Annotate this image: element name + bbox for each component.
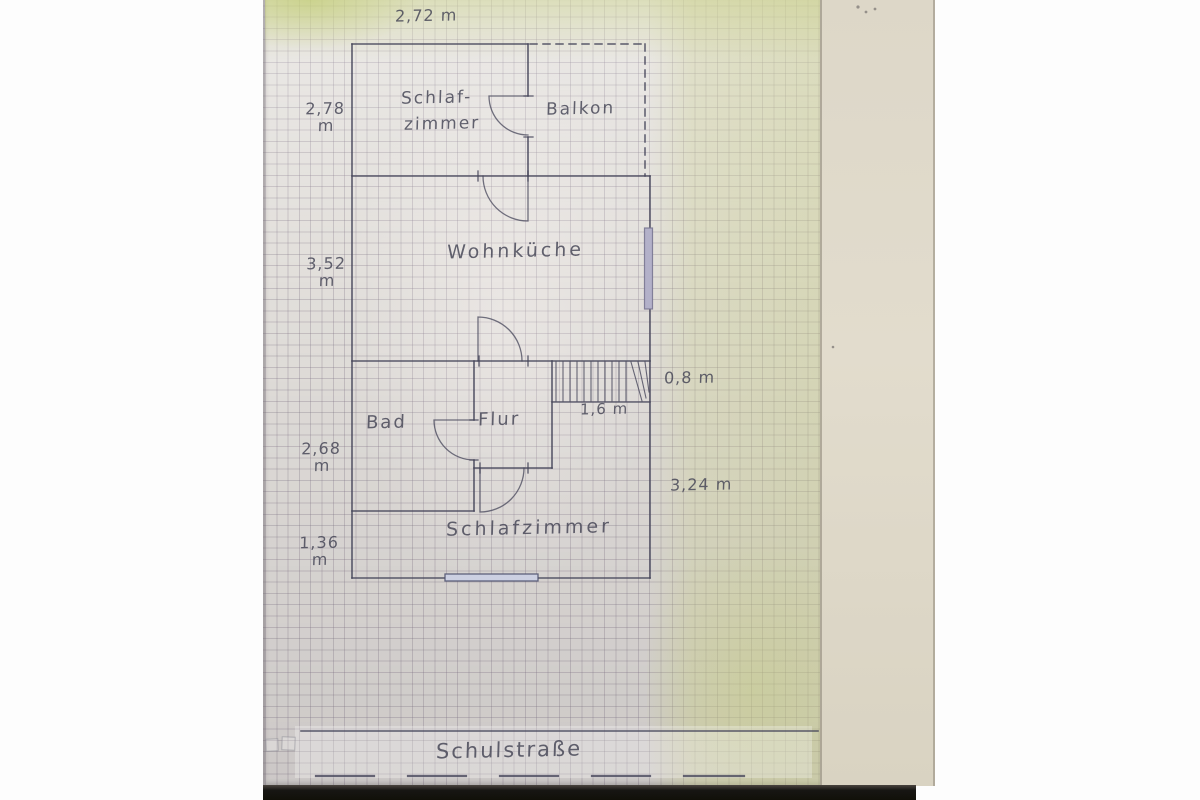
paper-tint-right <box>647 0 822 786</box>
dimension-stairs-depth: 0,8 m <box>664 369 716 387</box>
dimension-unit: m <box>317 117 344 134</box>
dimension-unit: m <box>313 457 340 474</box>
graph-paper-sheet <box>263 0 822 786</box>
paper-tint-center <box>345 35 665 595</box>
room-label-hallway: Flur <box>478 409 521 431</box>
room-label-balcony: Balkon <box>546 98 616 119</box>
dimension-left-mid: 3,52 m <box>305 256 346 290</box>
dimension-left-top: 2,78 m <box>304 101 345 135</box>
room-label-kitchen-living: Wohnküche <box>447 239 585 264</box>
dimension-left-lower: 2,68 m <box>300 441 341 475</box>
dimension-unit: m <box>311 551 338 568</box>
dimension-left-bottom: 1,36 m <box>298 535 339 569</box>
dimension-stairs-width: 1,6 m <box>580 401 629 418</box>
photo-of-floor-plan: 2,72 m 2,78 m 3,52 m 2,68 m 1,36 m Schla… <box>0 0 1200 800</box>
photo-shadow-strip <box>263 785 916 800</box>
dimension-right-height: 3,24 m <box>670 476 733 494</box>
room-label-bedroom-top-line2: zimmer <box>404 113 481 135</box>
beige-backing-sheet <box>820 0 935 786</box>
room-label-bath: Bad <box>366 412 407 434</box>
dimension-unit: m <box>318 272 345 289</box>
room-label-bedroom-bottom: Schlafzimmer <box>446 515 613 540</box>
room-label-bedroom-top-line1: Schlaf- <box>401 87 473 109</box>
dimension-top-width: 2,72 m <box>395 7 458 25</box>
street-label: Schulstraße <box>436 736 583 763</box>
